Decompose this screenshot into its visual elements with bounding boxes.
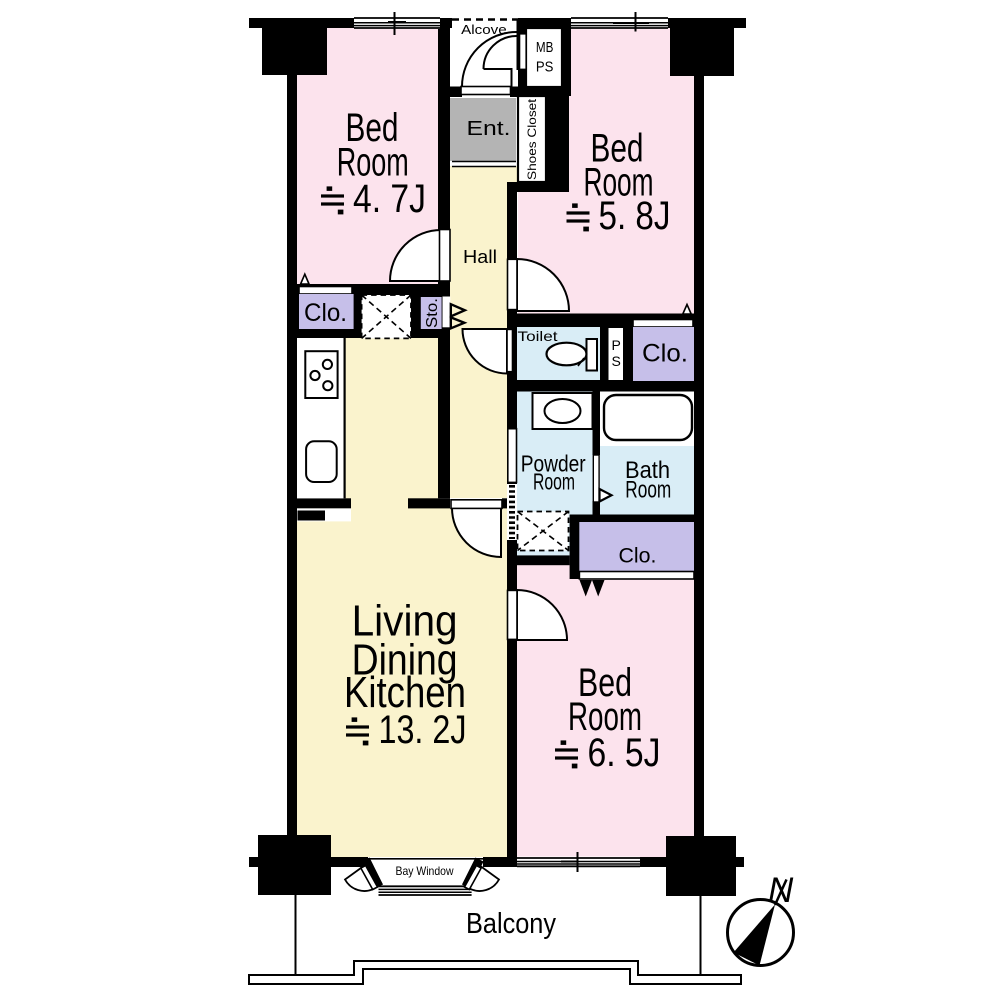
svg-text:Balcony: Balcony (466, 908, 556, 940)
svg-text:P: P (612, 337, 621, 353)
svg-text:Toilet: Toilet (518, 328, 558, 344)
svg-text:Sto.: Sto. (424, 298, 441, 328)
svg-text:Clo.: Clo. (619, 545, 657, 568)
svg-text:Room: Room (625, 477, 671, 504)
svg-text:Room: Room (533, 469, 575, 495)
svg-text:Shoes Closet: Shoes Closet (525, 98, 539, 180)
svg-text:N: N (768, 871, 794, 910)
svg-text:S: S (612, 353, 621, 369)
svg-text:Clo.: Clo. (642, 340, 688, 368)
svg-text:6. 5J: 6. 5J (588, 731, 661, 775)
svg-text:13. 2J: 13. 2J (379, 708, 467, 752)
svg-text:MB: MB (536, 39, 554, 56)
svg-text:Ent.: Ent. (467, 118, 511, 140)
svg-text:Clo.: Clo. (304, 299, 347, 327)
svg-text:5. 8J: 5. 8J (599, 194, 671, 238)
svg-text:Bay Window: Bay Window (396, 864, 454, 878)
svg-text:Hall: Hall (463, 247, 497, 267)
svg-text:4. 7J: 4. 7J (353, 177, 426, 221)
svg-text:PS: PS (536, 59, 554, 76)
